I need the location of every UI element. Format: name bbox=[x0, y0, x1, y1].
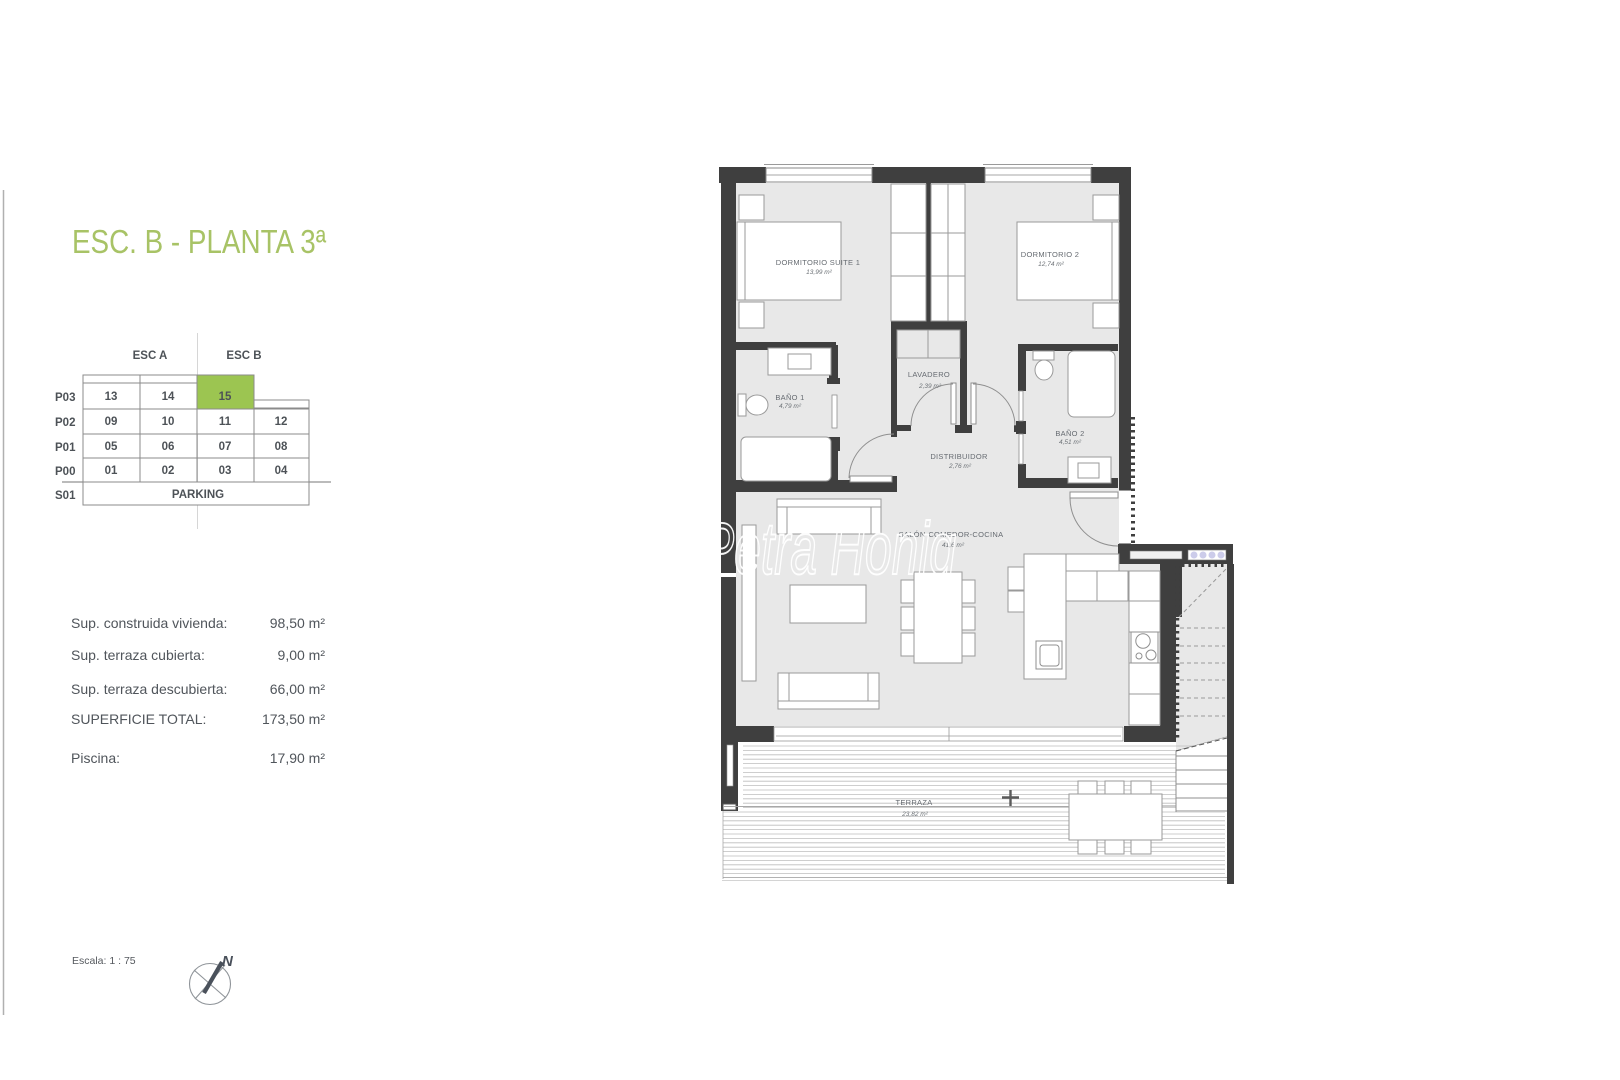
svg-text:2,39 m²: 2,39 m² bbox=[918, 383, 942, 390]
svg-text:10: 10 bbox=[162, 416, 175, 428]
svg-text:ESC B: ESC B bbox=[226, 350, 261, 362]
svg-text:N: N bbox=[222, 953, 234, 970]
svg-text:2,76 m²: 2,76 m² bbox=[948, 463, 972, 470]
svg-text:Sup. terraza cubierta:: Sup. terraza cubierta: bbox=[71, 647, 205, 663]
svg-text:TERRAZA: TERRAZA bbox=[895, 798, 932, 807]
svg-text:Piscina:: Piscina: bbox=[71, 750, 120, 766]
svg-text:13,99 m²: 13,99 m² bbox=[806, 269, 832, 276]
svg-text:01: 01 bbox=[105, 465, 118, 477]
svg-text:14: 14 bbox=[162, 391, 175, 403]
svg-text:ESC. B - PLANTA 3ª: ESC. B - PLANTA 3ª bbox=[72, 223, 327, 260]
svg-text:13: 13 bbox=[105, 391, 118, 403]
svg-text:BAÑO 2: BAÑO 2 bbox=[1055, 429, 1084, 438]
svg-text:06: 06 bbox=[162, 441, 175, 453]
svg-text:DORMITORIO 2: DORMITORIO 2 bbox=[1021, 250, 1079, 259]
svg-text:04: 04 bbox=[275, 465, 288, 477]
svg-text:P03: P03 bbox=[55, 392, 75, 404]
svg-text:9,00 m²: 9,00 m² bbox=[278, 647, 326, 663]
svg-text:S01: S01 bbox=[55, 490, 76, 502]
svg-text:98,50 m²: 98,50 m² bbox=[270, 615, 326, 631]
svg-text:Escala: 1 : 75: Escala: 1 : 75 bbox=[72, 955, 136, 967]
svg-text:P00: P00 bbox=[55, 466, 75, 478]
svg-text:11: 11 bbox=[219, 416, 232, 428]
svg-text:Petra Honig: Petra Honig bbox=[702, 507, 956, 590]
svg-text:BAÑO 1: BAÑO 1 bbox=[775, 393, 804, 402]
svg-text:P01: P01 bbox=[55, 442, 76, 454]
svg-text:15: 15 bbox=[219, 391, 232, 403]
svg-text:4,79 m²: 4,79 m² bbox=[779, 403, 802, 410]
svg-text:03: 03 bbox=[219, 465, 232, 477]
svg-text:08: 08 bbox=[275, 441, 288, 453]
svg-text:66,00 m²: 66,00 m² bbox=[270, 681, 326, 697]
svg-text:12: 12 bbox=[275, 416, 288, 428]
svg-text:4,51 m²: 4,51 m² bbox=[1059, 439, 1082, 446]
svg-text:DORMITORIO SUITE 1: DORMITORIO SUITE 1 bbox=[776, 258, 860, 267]
svg-text:09: 09 bbox=[105, 416, 118, 428]
svg-text:DISTRIBUIDOR: DISTRIBUIDOR bbox=[930, 452, 988, 461]
svg-text:P02: P02 bbox=[55, 417, 75, 429]
svg-text:07: 07 bbox=[219, 441, 232, 453]
svg-text:Sup. construida vivienda:: Sup. construida vivienda: bbox=[71, 615, 227, 631]
svg-text:SUPERFICIE TOTAL:: SUPERFICIE TOTAL: bbox=[71, 711, 206, 727]
svg-text:ESC A: ESC A bbox=[133, 350, 168, 362]
svg-text:LAVADERO: LAVADERO bbox=[908, 370, 950, 379]
svg-text:Sup. terraza descubierta:: Sup. terraza descubierta: bbox=[71, 681, 227, 697]
svg-text:PARKING: PARKING bbox=[172, 489, 224, 501]
svg-text:23,82 m²: 23,82 m² bbox=[901, 811, 928, 818]
svg-text:02: 02 bbox=[162, 465, 175, 477]
svg-text:17,90 m²: 17,90 m² bbox=[270, 750, 326, 766]
svg-text:12,74 m²: 12,74 m² bbox=[1038, 261, 1064, 268]
svg-text:05: 05 bbox=[105, 441, 118, 453]
svg-text:173,50 m²: 173,50 m² bbox=[262, 711, 325, 727]
